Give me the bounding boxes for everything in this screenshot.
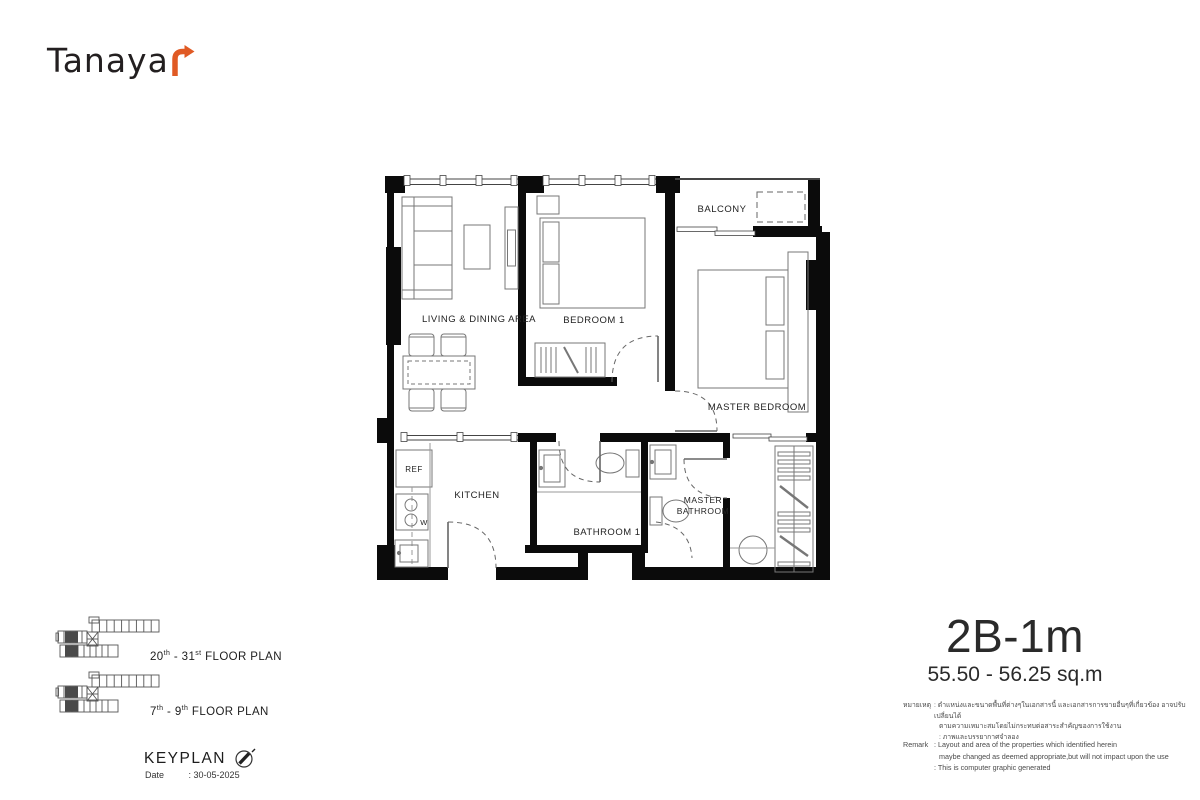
master-bathroom-door <box>684 459 727 498</box>
label-kitchen: KITCHEN <box>454 490 499 501</box>
label-master-bathroom-2: BATHROOM <box>677 506 729 516</box>
label-balcony: BALCONY <box>698 204 747 215</box>
label-bathroom1: BATHROOM 1 <box>573 527 640 538</box>
bathroom1-fixtures <box>537 450 641 492</box>
room-labels: LIVING & DINING AREA BEDROOM 1 BALCONY M… <box>405 204 806 538</box>
kitchen-fixtures <box>395 443 432 567</box>
remark-thai-label: หมายเหตุ <box>903 701 934 722</box>
unit-area: 55.50 - 56.25 sq.m <box>915 663 1115 687</box>
walls <box>377 176 830 580</box>
remark-thai: หมายเหตุ : ตำแหน่งและขนาดพื้นที่ต่างๆในเ… <box>903 701 1193 743</box>
closet-wardrobe <box>730 446 813 572</box>
unit-name: 2B-1m <box>915 612 1115 660</box>
remark-english: Remark : Layout and area of the properti… <box>903 739 1193 774</box>
remark-en-line3: : This is computer graphic generated <box>934 762 1193 774</box>
label-master-bedroom: MASTER BEDROOM <box>708 402 806 413</box>
keyplan-title-row: KEYPLAN <box>144 748 258 770</box>
remark-en-line2: maybe changed as deemed appropriate,but … <box>939 751 1193 763</box>
master-bed <box>698 252 808 412</box>
remark-thai-line1: : ตำแหน่งและขนาดพื้นที่ต่างๆในเอกสารนี้ … <box>934 701 1193 722</box>
unit-title-block: 2B-1m 55.50 - 56.25 sq.m <box>915 612 1115 687</box>
bedroom1-wardrobe <box>535 343 605 377</box>
keyplan-label-7-9: 7th - 9th FLOOR PLAN <box>150 705 269 718</box>
balcony-ac-unit <box>757 192 805 222</box>
remark-thai-line2: ตามความเหมาะสมโดยไม่กระทบต่อสาระสำคัญของ… <box>939 722 1193 733</box>
master-bathroom-inner-door <box>656 522 692 558</box>
label-ref: REF <box>405 465 423 474</box>
remark-en-line1: : Layout and area of the properties whic… <box>934 739 1193 751</box>
dining-set <box>403 334 475 411</box>
keyplan-thumbnail-upper <box>56 617 159 657</box>
keyplan-label-20-31: 20th - 31st FLOOR PLAN <box>150 650 282 663</box>
date-value: : 30-05-2025 <box>189 770 240 780</box>
bedroom1-bed <box>537 196 645 308</box>
label-bedroom1: BEDROOM 1 <box>563 315 625 326</box>
sofa <box>402 197 452 299</box>
tv-console <box>505 207 518 289</box>
entrance-door <box>448 522 496 568</box>
remark-en-label: Remark <box>903 739 934 751</box>
coffee-table <box>464 225 490 269</box>
label-living-dining: LIVING & DINING AREA <box>422 314 536 325</box>
label-washer: W <box>420 518 428 527</box>
keyplan-title: KEYPLAN <box>144 750 226 768</box>
keyplan-thumbnail-lower <box>56 672 159 712</box>
north-compass-icon <box>234 748 258 770</box>
date-row: Date : 30-05-2025 <box>145 770 240 780</box>
date-label: Date <box>145 770 164 780</box>
label-master-bathroom-1: MASTER <box>684 495 722 505</box>
bedroom1-door <box>612 336 658 382</box>
